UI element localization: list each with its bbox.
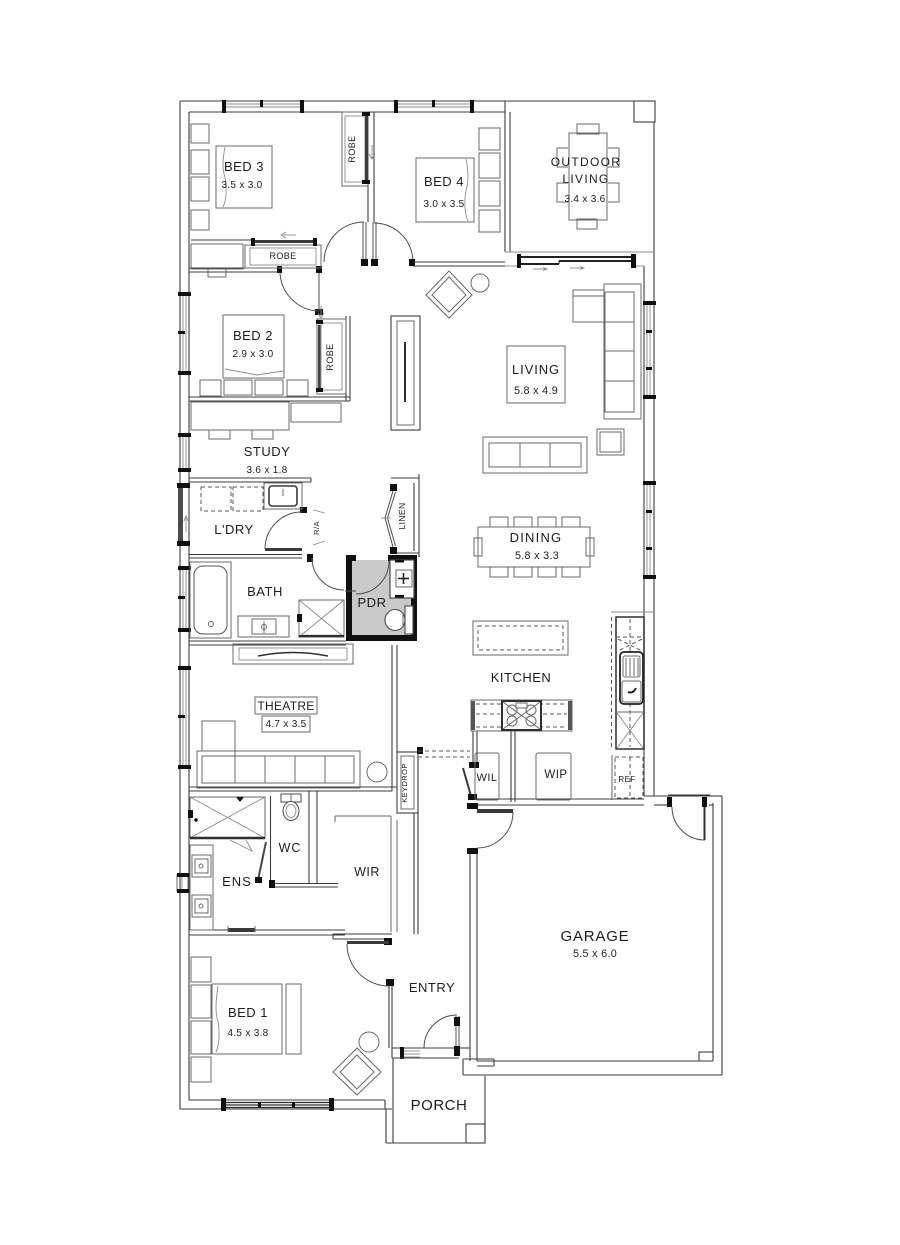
svg-text:LIVING: LIVING [512,362,560,377]
svg-text:WC: WC [279,841,302,855]
svg-text:2.9 x 3.0: 2.9 x 3.0 [232,349,273,360]
svg-text:3.4 x 3.6: 3.4 x 3.6 [564,194,605,205]
svg-text:LINEN: LINEN [397,502,407,529]
svg-text:GARAGE: GARAGE [561,928,630,945]
svg-text:REF: REF [618,775,635,784]
svg-text:ENTRY: ENTRY [409,980,455,995]
svg-text:R/A: R/A [312,521,321,535]
svg-text:5.8 x 4.9: 5.8 x 4.9 [514,385,558,397]
svg-text:3.0 x 3.5: 3.0 x 3.5 [423,199,464,210]
svg-text:WIR: WIR [354,865,380,879]
svg-text:4.7 x 3.5: 4.7 x 3.5 [265,719,306,730]
svg-text:3.6 x 1.8: 3.6 x 1.8 [246,465,287,476]
svg-text:4.5 x 3.8: 4.5 x 3.8 [227,1028,268,1039]
svg-text:PORCH: PORCH [411,1097,468,1114]
svg-text:ROBE: ROBE [325,343,335,370]
svg-text:BATH: BATH [247,584,283,599]
svg-text:BED 4: BED 4 [424,174,464,189]
svg-text:3.5 x 3.0: 3.5 x 3.0 [221,180,262,191]
svg-text:L'DRY: L'DRY [214,522,253,537]
svg-text:PDR: PDR [358,595,387,610]
svg-text:WIL: WIL [476,772,497,784]
svg-text:DINING: DINING [510,530,563,545]
svg-text:BED 2: BED 2 [233,328,273,343]
svg-text:LIVING: LIVING [562,172,609,186]
svg-text:STUDY: STUDY [244,444,291,459]
svg-text:5.8 x 3.3: 5.8 x 3.3 [515,550,559,562]
svg-text:ROBE: ROBE [347,135,357,162]
svg-text:5.5 x 6.0: 5.5 x 6.0 [573,948,617,960]
svg-text:BED 1: BED 1 [228,1005,268,1020]
svg-text:BED 3: BED 3 [224,159,264,174]
svg-text:KEYDROP: KEYDROP [400,763,409,802]
svg-text:ENS: ENS [222,874,252,889]
svg-text:ROBE: ROBE [269,251,296,261]
svg-text:WIP: WIP [544,769,567,781]
svg-text:OUTDOOR: OUTDOOR [551,155,621,169]
svg-text:THEATRE: THEATRE [257,699,314,713]
svg-text:KITCHEN: KITCHEN [491,670,552,685]
